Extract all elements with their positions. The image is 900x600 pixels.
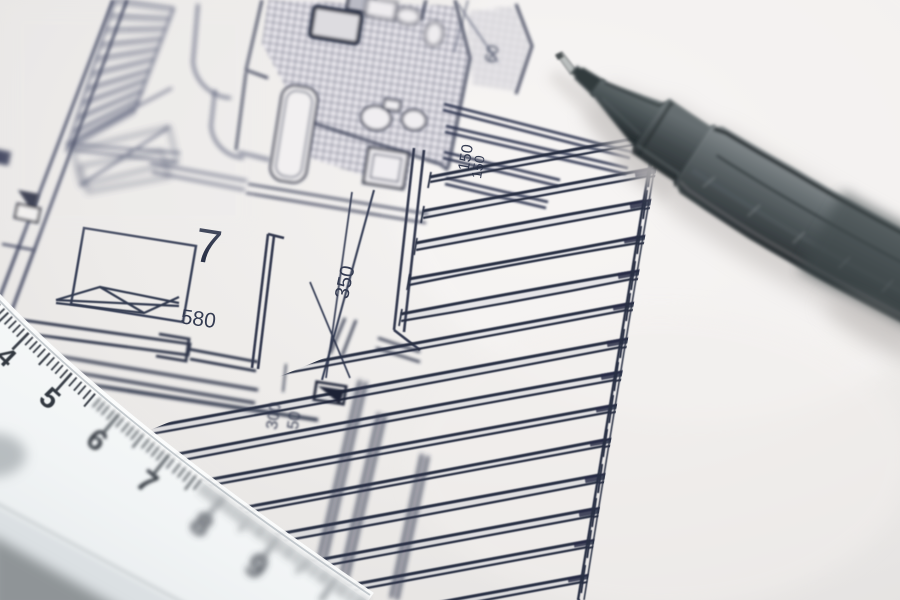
svg-text:50: 50 [285,410,305,430]
svg-text:580: 580 [179,305,217,333]
